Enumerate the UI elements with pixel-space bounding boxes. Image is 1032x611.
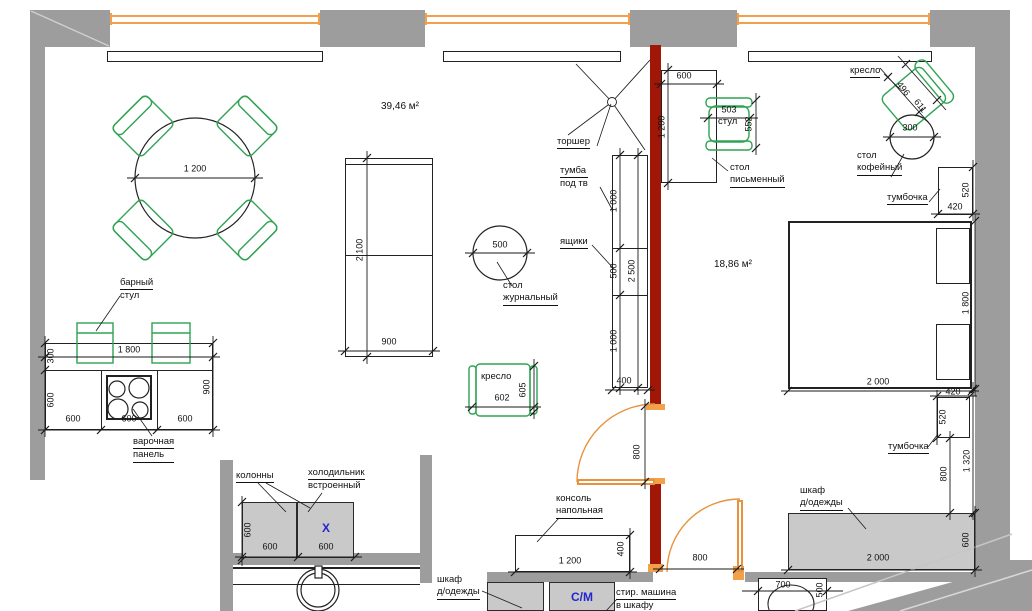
label-washer: стир. машинав шкафу [616,587,676,611]
floor-plan: 39,46 м² 18,86 м² 1 200 1 800 300 600 90… [0,0,1032,611]
dim-col-w2: 600 [318,543,333,552]
dim-nst-d: 520 [962,182,971,197]
dim-desk-l: 1 200 [658,116,667,139]
label-fridge: холодильниквстроенный [308,467,365,493]
dim-cons-d: 400 [617,541,626,556]
dim-coffee-d: 300 [902,124,917,133]
dim-kitchen-h: 900 [203,379,212,394]
dim-col-w1: 600 [262,543,277,552]
label-wardrobe-bottom: шкафд/одежды [437,574,480,600]
label-armchair-center: кресло [481,371,511,383]
dim-nst-w: 420 [947,203,962,212]
label-bar-stool: барныйстул [120,277,153,303]
dim-tv-s2: 500 [610,263,619,278]
dim-jt-d: 500 [492,241,507,250]
dim-gap-800: 800 [940,466,949,481]
dim-kitchen-c1: 600 [65,415,80,424]
label-cooktop: варочнаяпанель [133,436,174,463]
dim-desk-w: 600 [676,72,691,81]
door-1-arc [577,404,655,482]
dim-kitchen-c2: 600 [121,415,136,424]
dim-col-h: 600 [244,522,253,537]
area-living: 39,46 м² [381,102,419,112]
label-wardrobe-bedroom: шкафд/одежды [800,485,843,511]
label-floor-lamp: торшер [557,136,590,149]
label-nightstand-top: тумбочка [887,192,928,205]
kitchen-sink [297,566,339,611]
dim-door2: 800 [692,554,707,563]
dim-tv-total: 2 500 [628,260,637,283]
dim-bed-w: 1 800 [962,292,971,315]
dim-wc-w: 700 [775,581,790,590]
dim-kitchen-bar: 300 [47,348,56,363]
dim-kitchen-c3: 600 [177,415,192,424]
label-columns: колонны [236,470,274,483]
dim-nsb-w: 420 [945,388,960,397]
label-drawers: ящики [560,236,588,249]
dim-tv-d: 400 [616,377,631,386]
label-coffee-table-center: столжурнальный [503,280,558,306]
corner-hatch-topleft [31,11,109,46]
dim-arm-d: 605 [519,382,528,397]
label-desk-chair: стул [718,116,737,128]
dim-chair-w: 503 [721,106,736,115]
dim-door1: 800 [633,444,642,459]
dim-cons-l: 1 200 [559,557,582,566]
dim-tv-s3: 1 000 [610,330,619,353]
label-tv-stand: тумбапод тв [560,165,588,191]
dim-chair-d: 552 [745,116,754,131]
label-armchair-tr: кресло [850,65,880,78]
dim-ward-d: 600 [962,532,971,547]
dim-arm-w: 602 [494,394,509,403]
dim-sofa-w: 900 [381,338,396,347]
label-desk: столписьменный [730,162,785,188]
wall-corner-bottom-right [848,560,1032,611]
dim-dining: 1 200 [184,165,207,174]
label-floor-console: консольнапольная [556,493,603,519]
area-bedroom: 18,86 м² [714,260,752,270]
mark-washer-sm: С/М [571,591,593,603]
dim-kitchen-w: 1 800 [118,346,141,355]
label-nightstand-bottom: тумбочка [888,441,929,454]
dim-nsb-d: 520 [939,409,948,424]
dim-gap-1320: 1 320 [963,450,972,473]
mark-fridge-x: X [322,522,330,534]
dim-ward-l: 2 000 [867,554,890,563]
dim-sofa-l: 2 100 [356,239,365,262]
label-coffee-table-corner: столкофейный [857,150,902,176]
dim-wc-d: 500 [816,582,825,597]
dim-tv-s1: 1 000 [610,190,619,213]
dim-bed-l: 2 000 [867,378,890,387]
dim-kitchen-d: 600 [47,392,56,407]
